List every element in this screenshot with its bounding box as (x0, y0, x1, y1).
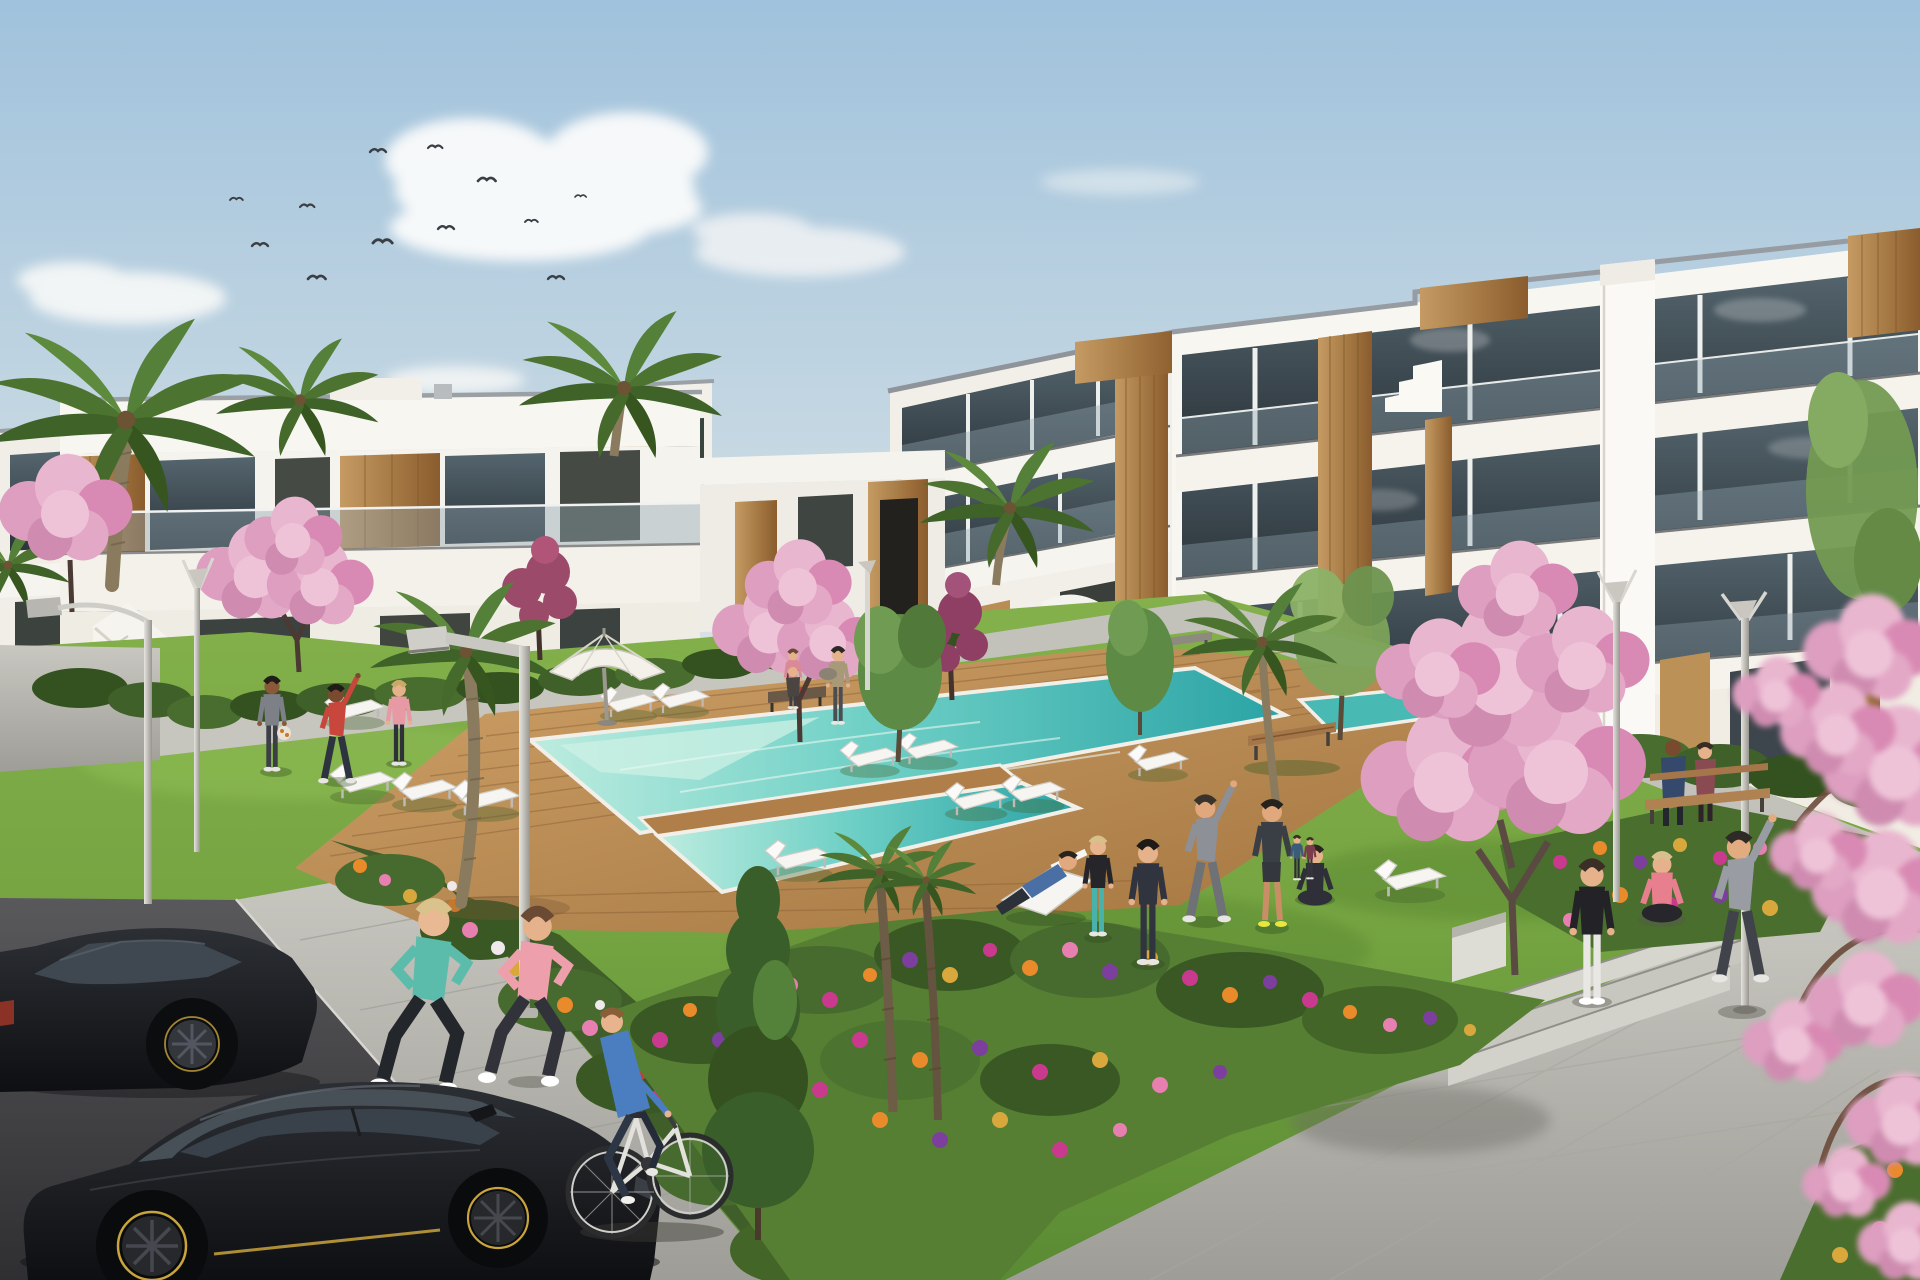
render-image: Sunny 3D architectural rendering of a ne… (0, 0, 1920, 1280)
cloud (1040, 169, 1200, 195)
wood-pier (1425, 416, 1452, 596)
ball (277, 726, 291, 740)
scene-canvas: Sunny 3D architectural rendering of a ne… (0, 0, 1920, 1280)
car-background (0, 928, 320, 1098)
tail-light (0, 1000, 14, 1026)
roof-wood-panel (1848, 228, 1920, 338)
jacket (819, 668, 837, 680)
person-on-bench-small (786, 667, 800, 697)
